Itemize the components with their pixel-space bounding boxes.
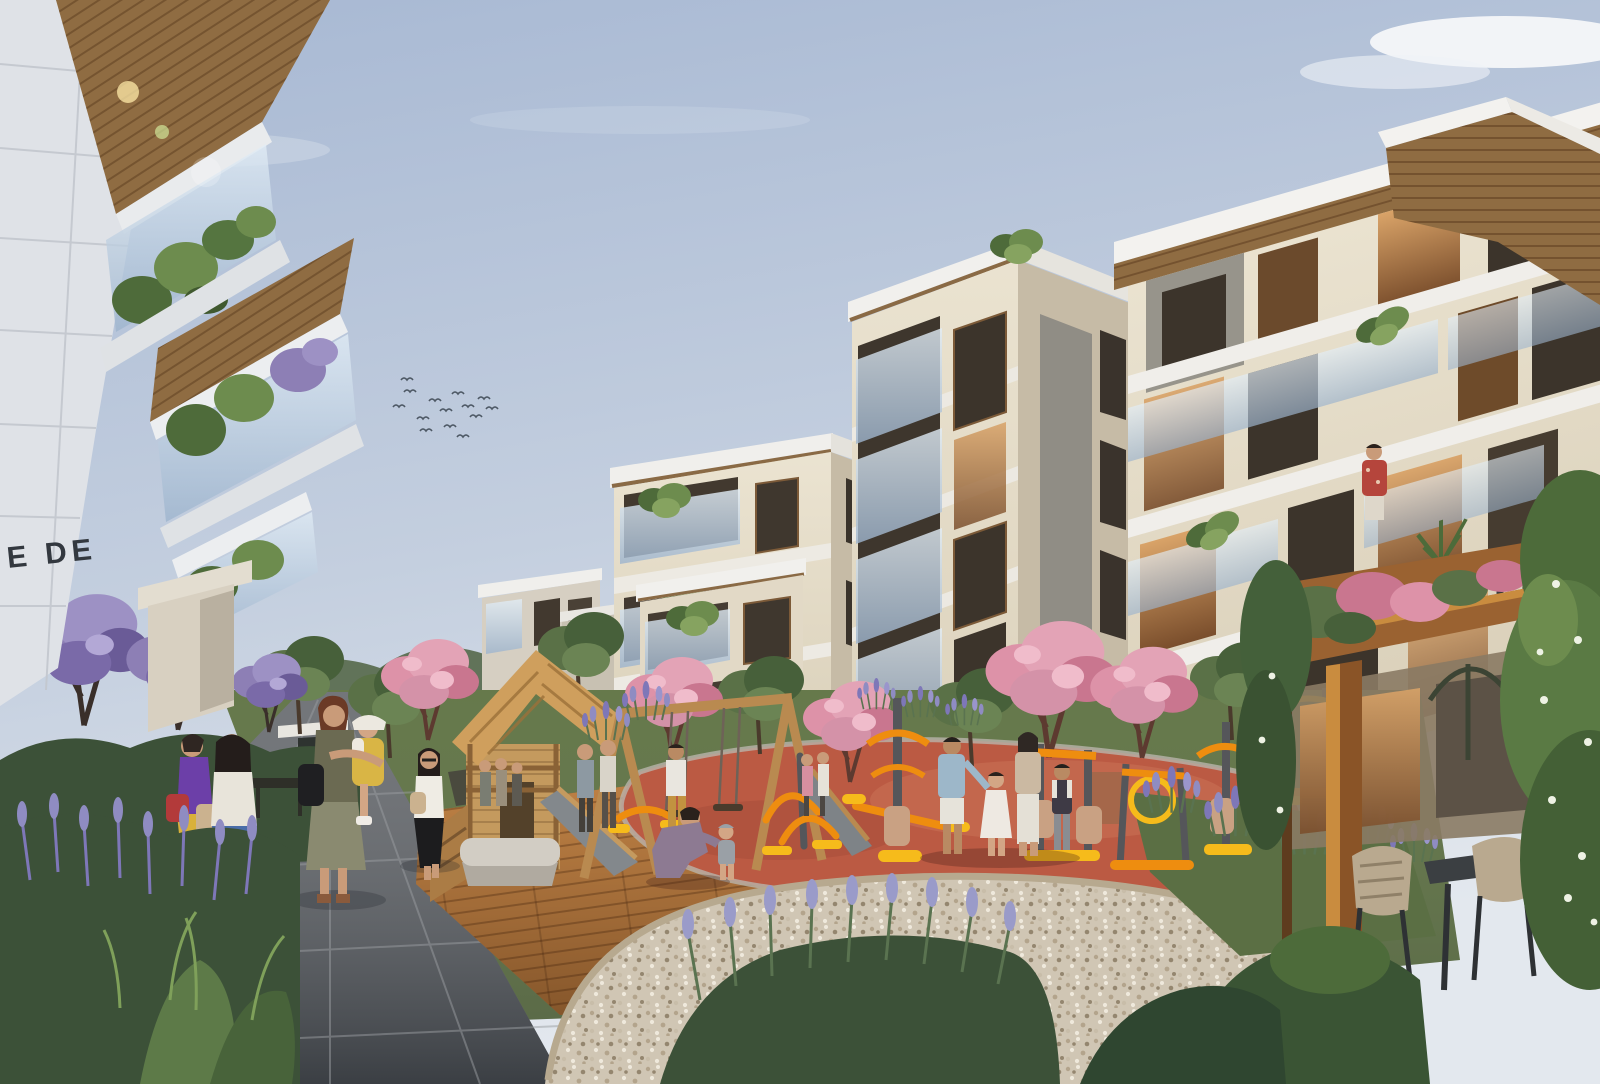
window: [1100, 550, 1126, 640]
window: [1100, 440, 1126, 530]
glass-balcony: [486, 599, 522, 654]
swing-seat: [713, 804, 743, 811]
courtyard-render: E DE: [0, 0, 1600, 1084]
render-canvas: E DE: [0, 0, 1600, 1084]
flare-dot: [155, 125, 169, 139]
window: [954, 312, 1006, 430]
shrub: [1270, 926, 1390, 994]
window: [756, 478, 798, 553]
flare-dot: [191, 157, 221, 187]
window: [744, 597, 790, 664]
cloud: [470, 106, 810, 134]
bench-top: [460, 838, 560, 866]
portico-shade: [200, 590, 234, 712]
window: [1100, 330, 1126, 420]
cloud: [1300, 55, 1490, 89]
table-leg: [1444, 884, 1448, 990]
flare-dot: [117, 81, 139, 103]
stone-bench: [460, 838, 560, 886]
window: [954, 522, 1006, 630]
window-warm: [954, 422, 1006, 530]
bed-left: [0, 793, 300, 1084]
person-distant-group: [479, 758, 523, 806]
